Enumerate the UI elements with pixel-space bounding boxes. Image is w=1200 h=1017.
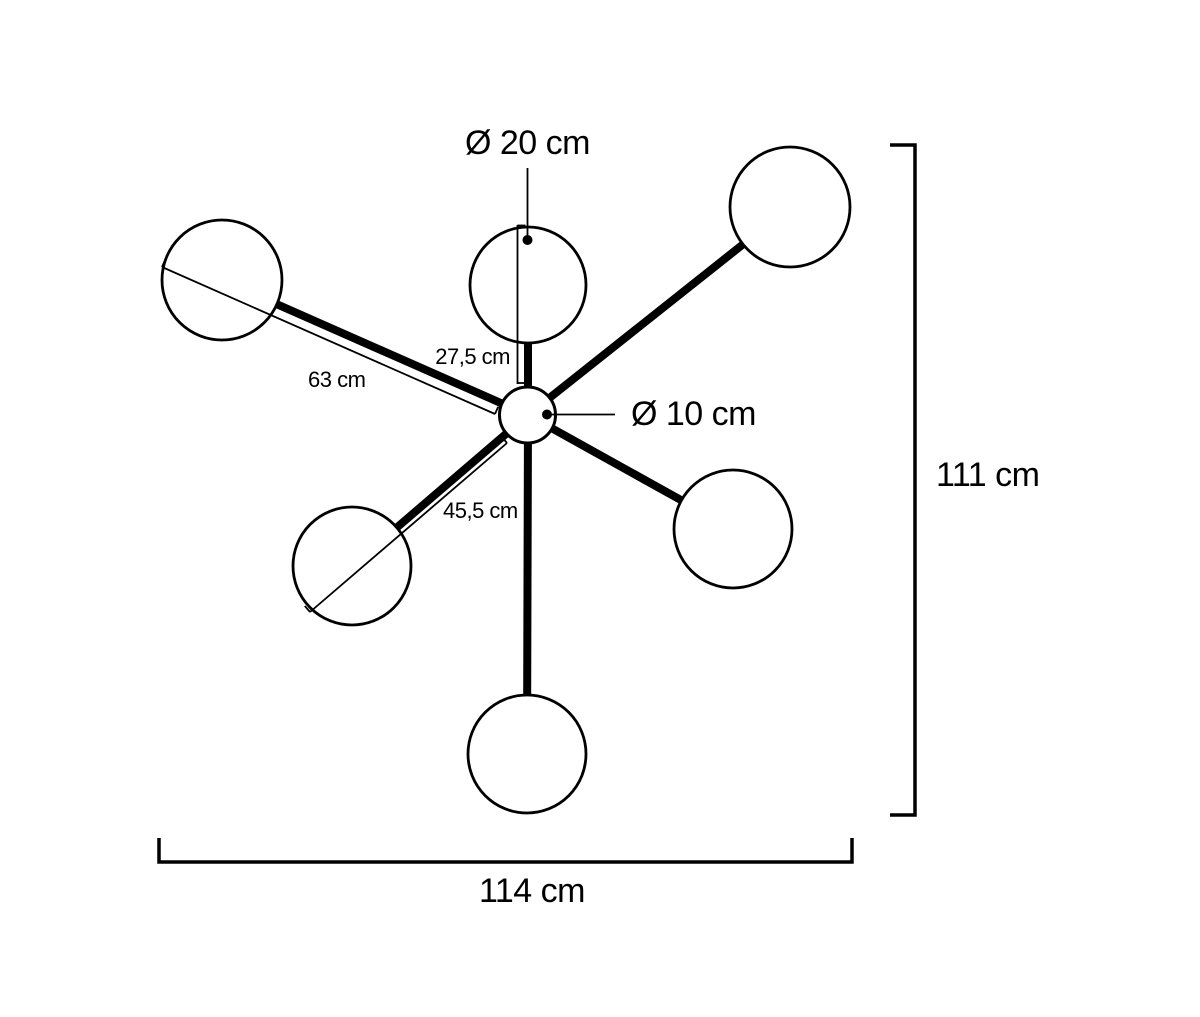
globe-upper-right bbox=[730, 147, 850, 267]
diagram-canvas bbox=[0, 0, 1200, 1017]
height-bracket bbox=[890, 145, 915, 815]
globe-diameter-label: Ø 20 cm bbox=[465, 126, 590, 160]
leader-dot bbox=[542, 410, 552, 420]
globe-right bbox=[674, 470, 792, 588]
measure-tick bbox=[495, 407, 498, 414]
short-arm-length-label: 45,5 cm bbox=[443, 500, 518, 522]
globe-bottom bbox=[468, 695, 586, 813]
globe-group bbox=[162, 147, 850, 813]
long-arm-length-label: 63 cm bbox=[308, 369, 365, 391]
overall-height-label: 111 cm bbox=[936, 458, 1039, 492]
width-bracket bbox=[159, 838, 852, 862]
top-arm-length-label: 27,5 cm bbox=[430, 346, 510, 368]
overall-width-label: 114 cm bbox=[479, 874, 585, 908]
leader-dot bbox=[523, 235, 533, 245]
hub-diameter-label: Ø 10 cm bbox=[631, 397, 756, 431]
globe-left bbox=[162, 220, 282, 340]
dimension-diagram: Ø 20 cm 27,5 cm 63 cm Ø 10 cm 45,5 cm 11… bbox=[0, 0, 1200, 1017]
globe-lower-left bbox=[293, 507, 411, 625]
